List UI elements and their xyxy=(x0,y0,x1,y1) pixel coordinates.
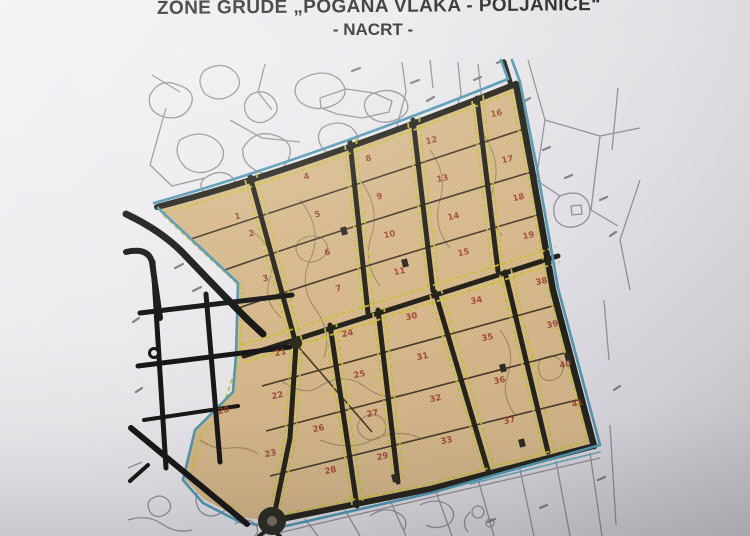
document-subtitle: - NACRT - xyxy=(0,20,748,40)
document-photo: 1234567891011121314151617181920212223242… xyxy=(0,0,750,536)
zoning-map: 1234567891011121314151617181920212223242… xyxy=(0,0,750,536)
title-block: ZONE GRUDE „POGANA VLAKA - POLJANICE“ - … xyxy=(0,0,750,40)
document-title: ZONE GRUDE „POGANA VLAKA - POLJANICE“ xyxy=(4,0,750,21)
